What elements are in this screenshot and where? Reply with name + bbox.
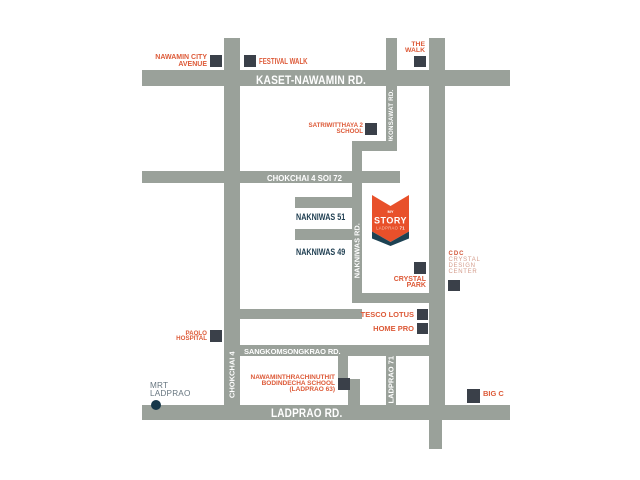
svg-text:LADPRAO 71: LADPRAO 71 (376, 226, 405, 231)
svg-text:MY: MY (388, 209, 394, 214)
svg-text:STORY: STORY (374, 216, 407, 226)
